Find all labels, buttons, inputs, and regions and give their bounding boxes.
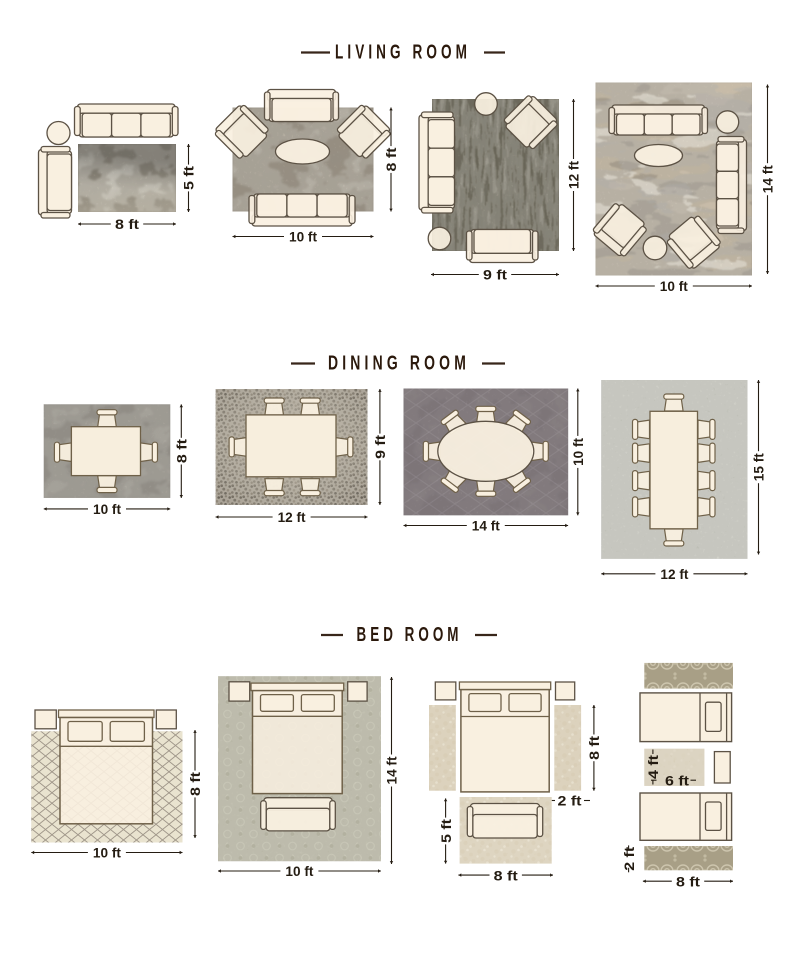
svg-text:8 ft: 8 ft xyxy=(586,736,602,760)
svg-text:8 ft: 8 ft xyxy=(174,439,190,463)
svg-text:12 ft: 12 ft xyxy=(660,566,688,582)
svg-text:14 ft: 14 ft xyxy=(760,165,776,193)
svg-text:5 ft: 5 ft xyxy=(438,819,454,843)
svg-text:8 ft: 8 ft xyxy=(115,216,139,232)
svg-text:15 ft: 15 ft xyxy=(751,453,767,481)
svg-text:2 ft: 2 ft xyxy=(621,846,637,870)
svg-text:10 ft: 10 ft xyxy=(660,278,688,294)
svg-text:2 ft: 2 ft xyxy=(558,793,582,809)
svg-text:8 ft: 8 ft xyxy=(494,867,518,883)
svg-text:9 ft: 9 ft xyxy=(372,435,388,459)
svg-text:10 ft: 10 ft xyxy=(285,863,313,879)
svg-text:4 ft: 4 ft xyxy=(645,755,661,779)
svg-text:8 ft: 8 ft xyxy=(383,147,399,171)
svg-text:10 ft: 10 ft xyxy=(93,845,121,861)
svg-text:BED ROOM: BED ROOM xyxy=(357,624,463,646)
svg-text:8 ft: 8 ft xyxy=(676,873,700,889)
svg-text:LIVING ROOM: LIVING ROOM xyxy=(335,42,471,64)
svg-text:12 ft: 12 ft xyxy=(566,161,582,189)
svg-text:10 ft: 10 ft xyxy=(289,229,317,245)
svg-text:14 ft: 14 ft xyxy=(472,518,500,534)
svg-text:14 ft: 14 ft xyxy=(384,756,400,784)
svg-text:12 ft: 12 ft xyxy=(278,509,306,525)
svg-text:9 ft: 9 ft xyxy=(483,267,507,283)
svg-text:8 ft: 8 ft xyxy=(187,772,203,796)
svg-text:6 ft: 6 ft xyxy=(665,772,689,788)
svg-text:5 ft: 5 ft xyxy=(181,166,197,190)
svg-text:10 ft: 10 ft xyxy=(570,438,586,466)
svg-text:DINING ROOM: DINING ROOM xyxy=(328,353,470,375)
svg-text:10 ft: 10 ft xyxy=(93,501,121,517)
